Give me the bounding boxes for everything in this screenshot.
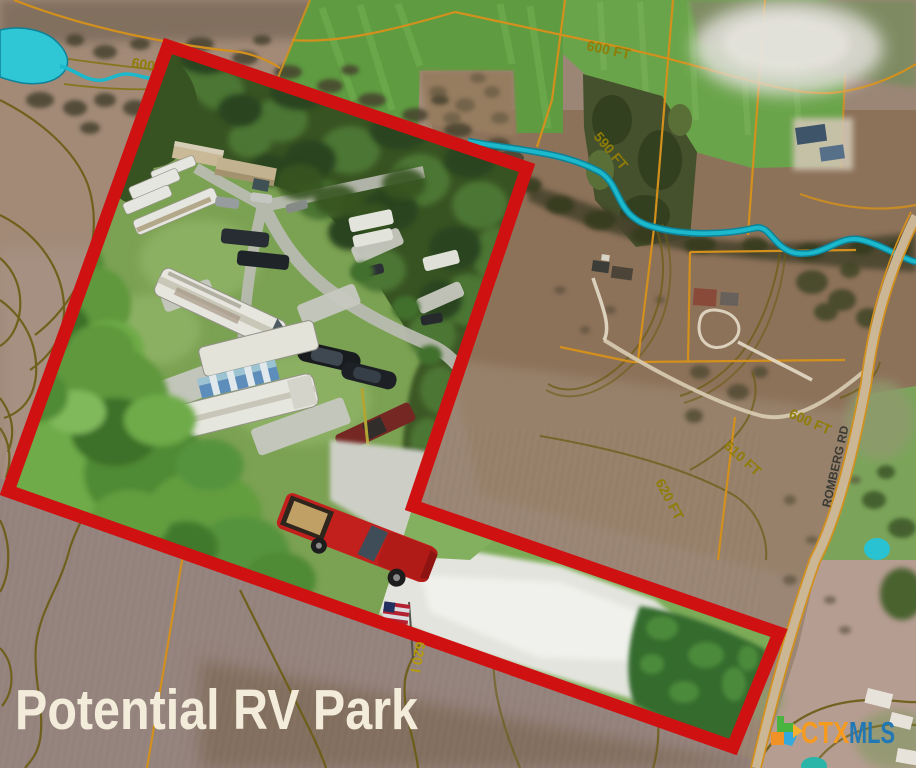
- svg-text:MLS: MLS: [849, 715, 895, 750]
- svg-text:CTX: CTX: [801, 715, 849, 750]
- svg-text:Potential RV Park: Potential RV Park: [15, 678, 418, 742]
